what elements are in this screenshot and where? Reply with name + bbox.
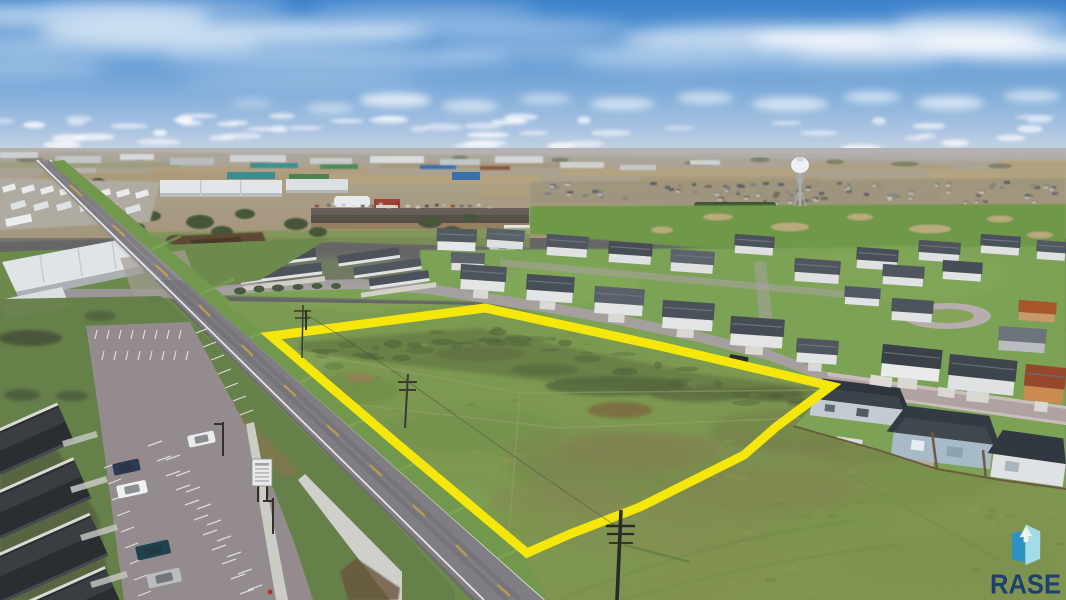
svg-text:RASE: RASE — [990, 569, 1061, 600]
